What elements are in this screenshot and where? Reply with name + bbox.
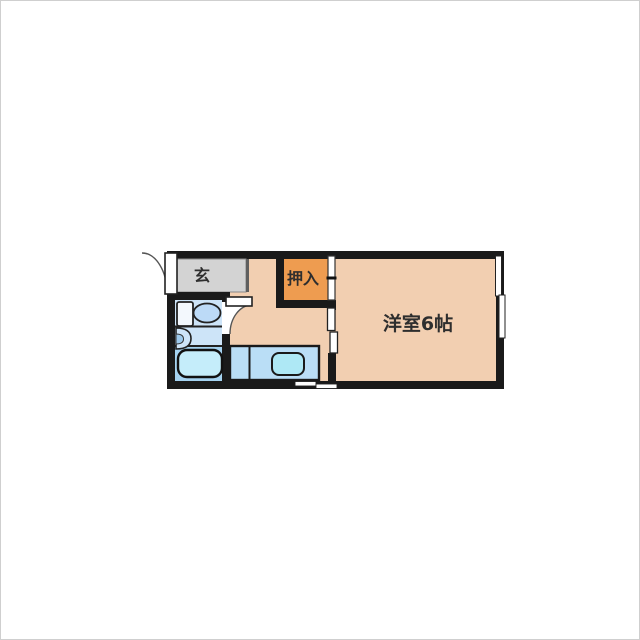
kitchen-sink-icon <box>272 353 304 375</box>
entrance-room <box>176 259 246 292</box>
window-bottom-panel-1 <box>295 382 316 387</box>
western-room-label: 洋室6帖 <box>383 312 453 335</box>
closet-door-tick <box>327 277 337 280</box>
toilet-bowl <box>194 304 221 323</box>
room-door-panel-2 <box>330 332 338 353</box>
closet-sliding-door-icon <box>327 256 337 300</box>
entrance-door-panel <box>165 253 177 294</box>
entrance-edge <box>246 259 249 292</box>
window-right-panel-1 <box>496 256 502 296</box>
room-door-panel-1 <box>328 308 336 331</box>
window-right-panel-2 <box>499 295 505 338</box>
basin-inner <box>176 334 184 344</box>
kitchen-counter <box>230 346 319 380</box>
entrance-label: 玄 <box>194 266 210 285</box>
floor-plan-image: 玄 押入 洋室6帖 <box>0 0 640 640</box>
entrance-door-icon <box>142 253 177 294</box>
floor-plan-svg: 玄 押入 洋室6帖 <box>1 1 639 639</box>
bathtub-icon <box>178 350 222 377</box>
closet-label: 押入 <box>287 269 319 288</box>
wash-basin-icon <box>176 328 191 349</box>
wall-closet-west <box>276 251 284 308</box>
bathroom-door-panel <box>226 297 252 306</box>
toilet-tank <box>177 302 193 326</box>
window-bottom-panel-2 <box>316 384 337 389</box>
wall-closet-bottom <box>276 300 336 308</box>
